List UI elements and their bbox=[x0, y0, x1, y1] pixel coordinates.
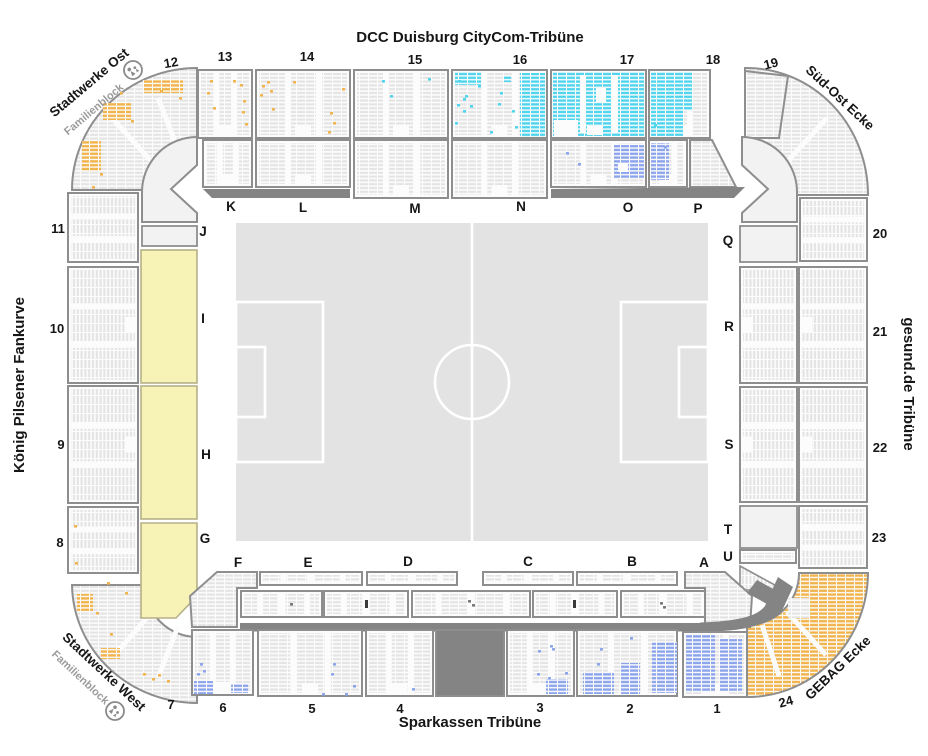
seat-dot bbox=[463, 98, 466, 101]
seat-dot bbox=[463, 110, 466, 113]
seat-status-patch bbox=[580, 75, 586, 133]
seat-status-patch bbox=[618, 163, 628, 172]
seat-status-patch bbox=[686, 634, 715, 692]
seat-dot bbox=[167, 680, 170, 683]
seat-status-patch bbox=[612, 75, 618, 133]
block-label-T: T bbox=[724, 522, 733, 537]
seat-dot bbox=[578, 163, 581, 166]
block-label-P: P bbox=[693, 201, 702, 216]
section-14-block[interactable] bbox=[256, 70, 350, 138]
stand-label-west: König Pilsener Fankurve bbox=[11, 297, 28, 473]
block-N[interactable] bbox=[452, 140, 547, 198]
section-4-closed-block[interactable] bbox=[436, 630, 504, 696]
seat-status-patch bbox=[82, 141, 101, 171]
block-label-L: L bbox=[299, 200, 307, 215]
section-label-1: 1 bbox=[713, 701, 720, 716]
seat-dot bbox=[267, 81, 270, 84]
section-label-5: 5 bbox=[308, 701, 315, 716]
block-label-H: H bbox=[201, 447, 211, 462]
business-box-1[interactable] bbox=[241, 591, 322, 617]
block-L[interactable] bbox=[256, 140, 350, 187]
section-8-block[interactable] bbox=[68, 507, 138, 573]
block-label-K: K bbox=[226, 199, 236, 214]
seat-dot bbox=[472, 604, 475, 607]
section-9-block[interactable] bbox=[68, 386, 138, 503]
seat-dot bbox=[537, 673, 540, 676]
seat-dot bbox=[333, 663, 336, 666]
seat-dot bbox=[158, 674, 161, 677]
block-K[interactable] bbox=[203, 140, 252, 187]
block-label-M: M bbox=[409, 201, 420, 216]
seat-dot bbox=[600, 648, 603, 651]
seat-status-patch bbox=[101, 648, 120, 659]
seat-dot bbox=[630, 637, 633, 640]
block-label-G: G bbox=[200, 531, 211, 546]
block-R[interactable] bbox=[740, 267, 797, 383]
seat-status-patch bbox=[683, 72, 693, 110]
block-label-R: R bbox=[724, 319, 734, 334]
block-I-standing[interactable] bbox=[141, 250, 197, 383]
block-label-N: N bbox=[516, 199, 526, 214]
stand-label-east: gesund.de Tribüne bbox=[900, 317, 917, 450]
section-label-19: 19 bbox=[762, 54, 780, 72]
seat-dot bbox=[428, 78, 431, 81]
seat-dot bbox=[353, 685, 356, 688]
stadium-seat-map: DCC Duisburg CityCom-Tribüne Sparkassen … bbox=[0, 0, 928, 756]
seat-status-patch bbox=[614, 145, 644, 179]
seat-dot bbox=[566, 152, 569, 155]
seat-status-patch bbox=[573, 600, 576, 608]
seat-dot bbox=[131, 120, 134, 123]
seat-dot bbox=[100, 173, 103, 176]
block-label-I: I bbox=[201, 311, 205, 326]
section-label-23: 23 bbox=[872, 530, 886, 545]
seat-dot bbox=[538, 650, 541, 653]
seat-status-patch bbox=[546, 679, 568, 694]
seat-dot bbox=[468, 600, 471, 603]
seat-dot bbox=[210, 80, 213, 83]
seat-dot bbox=[515, 126, 518, 129]
seat-status-patch bbox=[788, 598, 810, 618]
section-label-20: 20 bbox=[873, 226, 887, 241]
seat-dot bbox=[498, 103, 501, 106]
section-label-17: 17 bbox=[620, 52, 634, 67]
seat-dot bbox=[179, 97, 182, 100]
block-label-A: A bbox=[699, 555, 709, 570]
block-U-strip[interactable] bbox=[740, 550, 796, 563]
seat-dot bbox=[597, 663, 600, 666]
block-label-J: J bbox=[199, 224, 207, 239]
seat-dot bbox=[390, 95, 393, 98]
seat-dot bbox=[213, 107, 216, 110]
seat-dot bbox=[490, 131, 493, 134]
block-T[interactable] bbox=[740, 506, 797, 548]
seat-dot bbox=[412, 688, 415, 691]
section-label-6: 6 bbox=[219, 700, 226, 715]
seat-dot bbox=[342, 88, 345, 91]
pitch bbox=[236, 223, 708, 541]
block-E[interactable] bbox=[260, 572, 362, 585]
seat-status-patch bbox=[194, 681, 213, 694]
seat-status-patch bbox=[652, 642, 677, 693]
seat-dot bbox=[270, 90, 273, 93]
block-label-S: S bbox=[724, 437, 733, 452]
seat-dot bbox=[290, 603, 293, 606]
block-Q[interactable] bbox=[740, 226, 797, 262]
seat-dot bbox=[457, 104, 460, 107]
section-label-13: 13 bbox=[218, 49, 232, 64]
block-label-F: F bbox=[234, 555, 242, 570]
seat-dot bbox=[333, 122, 336, 125]
seat-dot bbox=[233, 80, 236, 83]
seat-dot bbox=[260, 94, 263, 97]
seat-dot bbox=[160, 90, 163, 93]
seat-status-patch bbox=[720, 639, 742, 691]
seat-dot bbox=[245, 123, 248, 126]
seat-dot bbox=[203, 670, 206, 673]
section-23-block[interactable] bbox=[799, 506, 867, 568]
section-label-2: 2 bbox=[626, 701, 633, 716]
seat-status-patch bbox=[554, 120, 578, 136]
section-22-block[interactable] bbox=[799, 387, 867, 502]
seat-dot bbox=[654, 124, 657, 127]
block-label-D: D bbox=[403, 554, 413, 569]
seat-dot bbox=[552, 648, 555, 651]
seat-dot bbox=[660, 602, 663, 605]
seat-dot bbox=[143, 673, 146, 676]
seat-status-patch bbox=[620, 663, 640, 694]
seat-dot bbox=[262, 85, 265, 88]
block-label-E: E bbox=[303, 555, 312, 570]
seat-dot bbox=[382, 80, 385, 83]
seat-status-patch bbox=[455, 72, 481, 85]
section-11-block[interactable] bbox=[68, 193, 138, 262]
section-4-block[interactable] bbox=[366, 630, 433, 696]
section-label-7: 7 bbox=[167, 697, 174, 712]
stand-label-north: DCC Duisburg CityCom-Tribüne bbox=[356, 29, 584, 46]
stand-label-south: Sparkassen Tribüne bbox=[399, 714, 542, 731]
seat-dot bbox=[565, 672, 568, 675]
seat-dot bbox=[345, 693, 348, 696]
block-H-standing[interactable] bbox=[141, 386, 197, 519]
section-label-22: 22 bbox=[873, 440, 887, 455]
section-label-18: 18 bbox=[706, 52, 720, 67]
section-label-21: 21 bbox=[873, 324, 887, 339]
business-box-3[interactable] bbox=[412, 591, 530, 617]
seat-dot bbox=[207, 92, 210, 95]
seat-dot bbox=[74, 525, 77, 528]
section-label-8: 8 bbox=[56, 535, 63, 550]
section-label-11: 11 bbox=[51, 221, 65, 236]
seat-dot bbox=[455, 122, 458, 125]
block-label-C: C bbox=[523, 554, 533, 569]
seat-dot bbox=[107, 582, 110, 585]
section-label-14: 14 bbox=[300, 49, 315, 64]
seat-dot bbox=[458, 80, 461, 83]
block-C[interactable] bbox=[483, 572, 573, 585]
seat-dot bbox=[110, 633, 113, 636]
seat-dot bbox=[272, 108, 275, 111]
seat-dot bbox=[465, 95, 468, 98]
seat-dot bbox=[96, 612, 99, 615]
seat-dot bbox=[322, 693, 325, 696]
section-13-block[interactable] bbox=[198, 70, 252, 138]
seat-dot bbox=[663, 606, 666, 609]
block-S[interactable] bbox=[740, 387, 797, 502]
seat-status-patch bbox=[587, 126, 603, 135]
block-D[interactable] bbox=[367, 572, 457, 585]
seat-status-patch bbox=[583, 672, 614, 694]
section-label-24: 24 bbox=[777, 692, 796, 710]
block-label-B: B bbox=[627, 554, 637, 569]
seat-dot bbox=[500, 92, 503, 95]
seat-dot bbox=[470, 105, 473, 108]
seat-dot bbox=[330, 112, 333, 115]
section-label-16: 16 bbox=[513, 52, 527, 67]
section-label-10: 10 bbox=[50, 321, 64, 336]
stadium-map-svg: DCC Duisburg CityCom-Tribüne Sparkassen … bbox=[0, 0, 928, 756]
block-G-standing[interactable] bbox=[141, 523, 197, 618]
seat-dot bbox=[75, 562, 78, 565]
seat-dot bbox=[293, 81, 296, 84]
seat-dot bbox=[243, 100, 246, 103]
block-J[interactable] bbox=[142, 226, 197, 246]
seat-dot bbox=[550, 645, 553, 648]
seat-dot bbox=[125, 592, 128, 595]
section-20-block[interactable] bbox=[800, 198, 867, 261]
seat-dot bbox=[240, 84, 243, 87]
seat-dot bbox=[152, 678, 155, 681]
seat-dot bbox=[664, 146, 667, 149]
seat-dot bbox=[92, 186, 95, 189]
block-B[interactable] bbox=[577, 572, 677, 585]
section-label-4: 4 bbox=[396, 701, 404, 716]
block-p-side-wedge[interactable] bbox=[690, 140, 736, 187]
block-label-U: U bbox=[723, 549, 733, 564]
section-15-block[interactable] bbox=[354, 70, 448, 138]
seat-status-patch bbox=[365, 600, 368, 608]
seat-status-patch bbox=[77, 594, 93, 611]
seat-dot bbox=[331, 673, 334, 676]
block-label-O: O bbox=[623, 200, 634, 215]
seat-dot bbox=[478, 85, 481, 88]
seat-status-patch bbox=[520, 73, 545, 137]
section-label-15: 15 bbox=[408, 52, 422, 67]
section-5-block[interactable] bbox=[258, 630, 362, 696]
seat-status-patch bbox=[503, 76, 511, 82]
seat-dot bbox=[197, 673, 200, 676]
seat-status-patch bbox=[231, 684, 248, 693]
seat-status-patch bbox=[596, 88, 606, 102]
seat-dot bbox=[548, 677, 551, 680]
block-label-Q: Q bbox=[723, 233, 734, 248]
section-21-block[interactable] bbox=[799, 267, 867, 383]
section-label-3: 3 bbox=[536, 700, 543, 715]
block-M[interactable] bbox=[354, 140, 448, 198]
section-label-12: 12 bbox=[162, 54, 179, 71]
seat-dot bbox=[200, 663, 203, 666]
section-label-9: 9 bbox=[57, 437, 64, 452]
seat-dot bbox=[328, 131, 331, 134]
section-10-block[interactable] bbox=[68, 267, 138, 383]
seat-dot bbox=[512, 110, 515, 113]
seat-dot bbox=[242, 111, 245, 114]
